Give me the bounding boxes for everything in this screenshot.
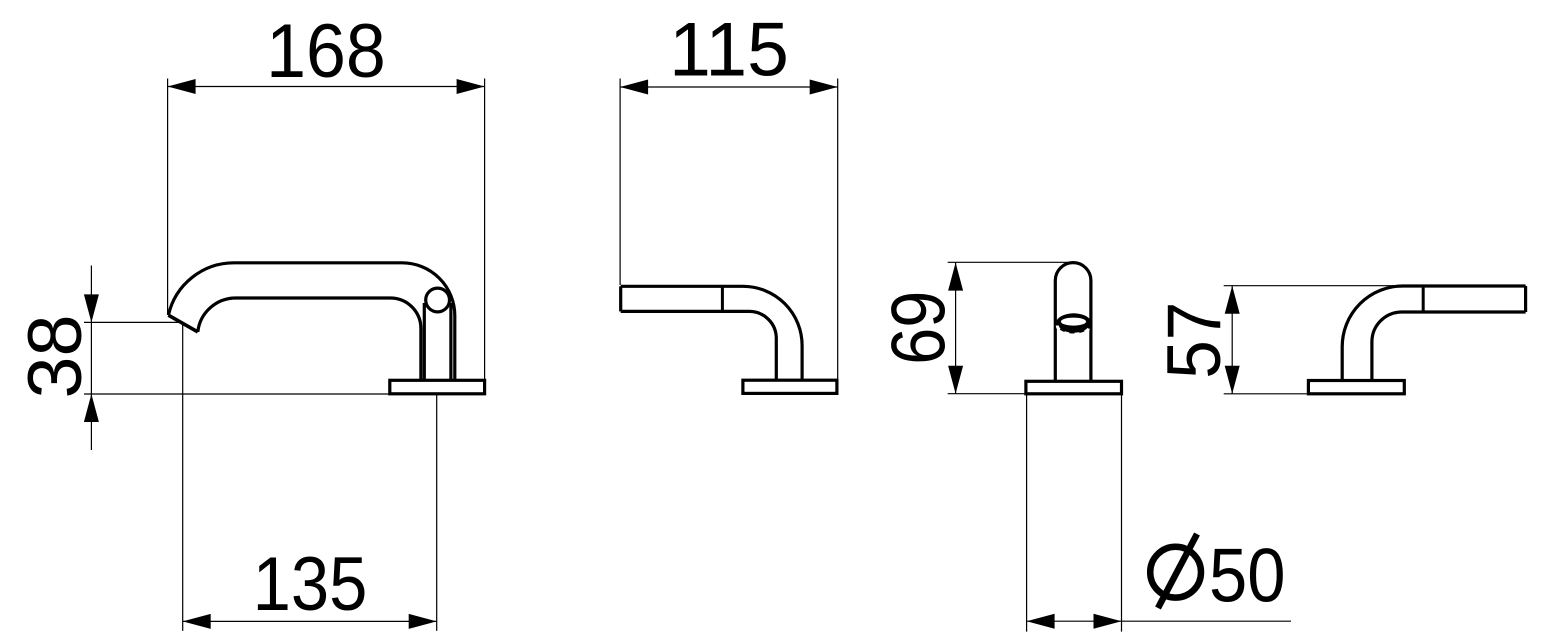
svg-text:69: 69 xyxy=(877,291,962,365)
svg-text:168: 168 xyxy=(266,9,386,94)
svg-text:135: 135 xyxy=(253,542,368,627)
svg-text:50: 50 xyxy=(1209,533,1286,618)
svg-text:38: 38 xyxy=(13,315,98,399)
svg-text:57: 57 xyxy=(1152,302,1237,379)
svg-text:115: 115 xyxy=(669,8,789,93)
